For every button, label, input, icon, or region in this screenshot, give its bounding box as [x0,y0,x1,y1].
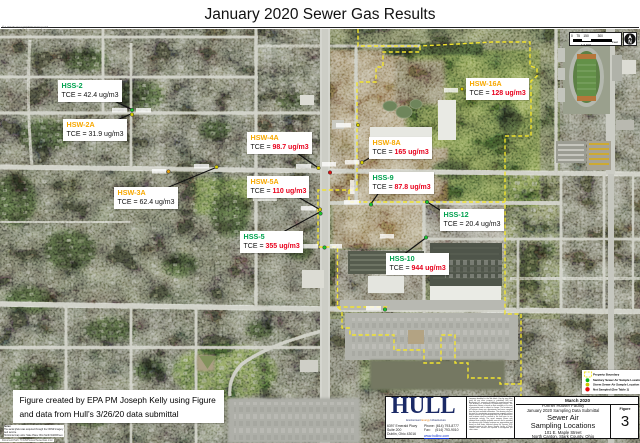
svg-text:Storm Sewer Air Sample Locatio: Storm Sewer Air Sample Location [593,383,640,387]
svg-text:Property Boundary: Property Boundary [593,372,620,376]
svg-text:Not Sampled (See Table 1): Not Sampled (See Table 1) [593,387,629,391]
svg-text:N: N [628,40,632,46]
svg-text:Sanitary Sewer Air Sample Loca: Sanitary Sewer Air Sample Location [593,378,640,382]
